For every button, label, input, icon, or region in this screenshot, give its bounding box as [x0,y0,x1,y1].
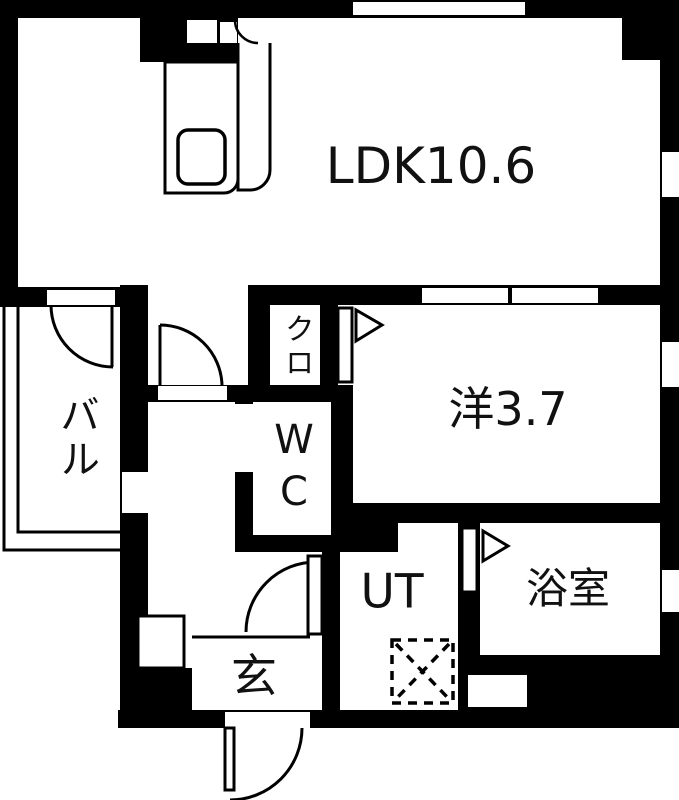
opening-entrance-door [225,712,310,728]
balcony-label: バル [55,394,97,482]
kitchen-sink [178,130,225,184]
shoe-cabinet [138,616,184,668]
washing-machine-space-icon [392,640,453,703]
wall-bottom [118,710,679,728]
ldk-label: LDK10.6 [326,140,536,193]
utility-door-arc [246,562,316,632]
western-room-label: 洋3.7 [448,385,567,433]
western-sliding-door-panel [338,308,352,382]
opening-bath-lower-notch [468,675,527,707]
closet-label: クロ [280,313,312,381]
wall-wc-bottom [235,535,353,552]
kitchen-panel [238,43,270,190]
wall-top [0,0,679,18]
opening-balcony-door [47,290,115,305]
balcony-door-arc [51,305,113,367]
western-sliding-door-marker-icon [356,310,382,341]
wall-western-left [331,385,353,523]
opening-hall-door [158,386,227,400]
entrance-door-arc [230,728,302,800]
wall-closet-right [320,305,338,385]
wall-utility-left [322,552,340,712]
bath-sliding-door-marker-icon [483,531,508,561]
window-bath-right [662,570,679,612]
utility-door-leaf [308,556,322,634]
floor-plan-drawing [0,0,679,800]
window-ldk-top [353,2,525,15]
window-western-right [662,342,679,387]
kitchen-door-arc [235,20,258,43]
wall-topright-step [622,18,660,60]
utility-label: UT [360,567,423,616]
bath-sliding-door-panel [462,528,477,592]
floor-plan: LDK10.6 洋3.7 バル クロ WC UT 浴室 玄 [0,0,679,800]
bathroom-label: 浴室 [526,567,610,611]
wall-left [0,0,18,307]
window-western-top-1 [422,288,508,303]
entrance-label: 玄 [231,652,277,700]
wall-entrance-block [148,668,192,710]
toilet-label: WC [273,417,315,521]
window-western-top-2 [512,288,598,303]
opening-wc-door [235,404,253,472]
window-kitchen-1 [187,20,217,43]
hall-door-arc [160,325,222,385]
window-hall-left [122,472,148,513]
window-ldk-right [662,152,679,197]
entrance-door-leaf [225,728,234,790]
